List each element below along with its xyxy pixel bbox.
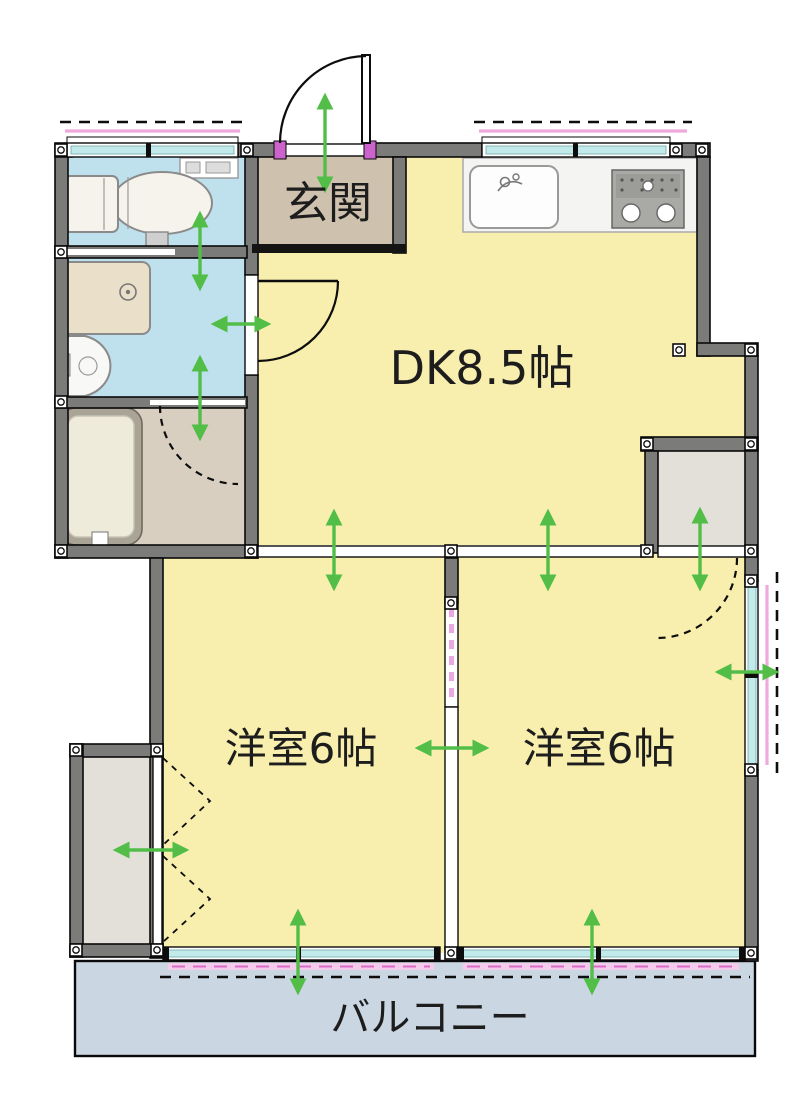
window-left-room-balcony	[163, 947, 440, 970]
column-marker-icon	[745, 947, 757, 959]
column-marker-icon	[151, 744, 163, 756]
window-toilet	[60, 122, 245, 157]
washing-machine-pan-icon	[62, 262, 150, 334]
column-marker-icon	[245, 545, 257, 557]
kitchen-counter	[463, 158, 697, 232]
column-marker-icon	[55, 396, 67, 408]
column-marker-icon	[445, 545, 457, 557]
column-marker-icon	[641, 438, 653, 450]
dk-label: DK8.5帖	[390, 341, 575, 395]
floor-plan-drawing: 玄関 DK8.5帖 洋室6帖 洋室6帖 バルコニー	[0, 0, 800, 1102]
column-marker-icon	[445, 597, 457, 609]
room-divider-lower	[445, 707, 458, 950]
room-fills	[61, 150, 755, 1056]
column-marker-icon	[70, 744, 82, 756]
column-marker-icon	[745, 438, 757, 450]
stove-icon	[612, 170, 684, 228]
column-marker-icon	[55, 545, 67, 557]
column-marker-icon	[745, 764, 757, 776]
closet-right	[651, 451, 745, 546]
kitchen-sink-icon	[470, 166, 558, 228]
column-marker-icon	[745, 344, 757, 356]
floor-plan-page: 玄関 DK8.5帖 洋室6帖 洋室6帖 バルコニー	[0, 0, 800, 1102]
column-marker-icon	[670, 144, 682, 156]
column-marker-icon	[241, 144, 253, 156]
column-marker-icon	[641, 545, 653, 557]
window-right-room-side	[745, 572, 777, 778]
genkan-step-edge	[252, 244, 406, 253]
window-right-room-balcony	[458, 947, 745, 970]
column-marker-icon	[696, 144, 708, 156]
column-marker-icon	[55, 144, 67, 156]
column-marker-icon	[673, 344, 685, 356]
genkan-label: 玄関	[284, 178, 372, 229]
bathtub-icon	[60, 408, 142, 546]
column-marker-icon	[445, 947, 457, 959]
column-marker-icon	[70, 944, 82, 956]
column-marker-icon	[745, 575, 757, 587]
western-room-right-label: 洋室6帖	[523, 724, 676, 773]
balcony-label: バルコニー	[330, 995, 529, 1041]
column-marker-icon	[745, 545, 757, 557]
column-marker-icon	[151, 944, 163, 956]
western-room-left-label: 洋室6帖	[225, 724, 378, 773]
window-kitchen	[474, 122, 692, 157]
column-marker-icon	[55, 246, 67, 258]
